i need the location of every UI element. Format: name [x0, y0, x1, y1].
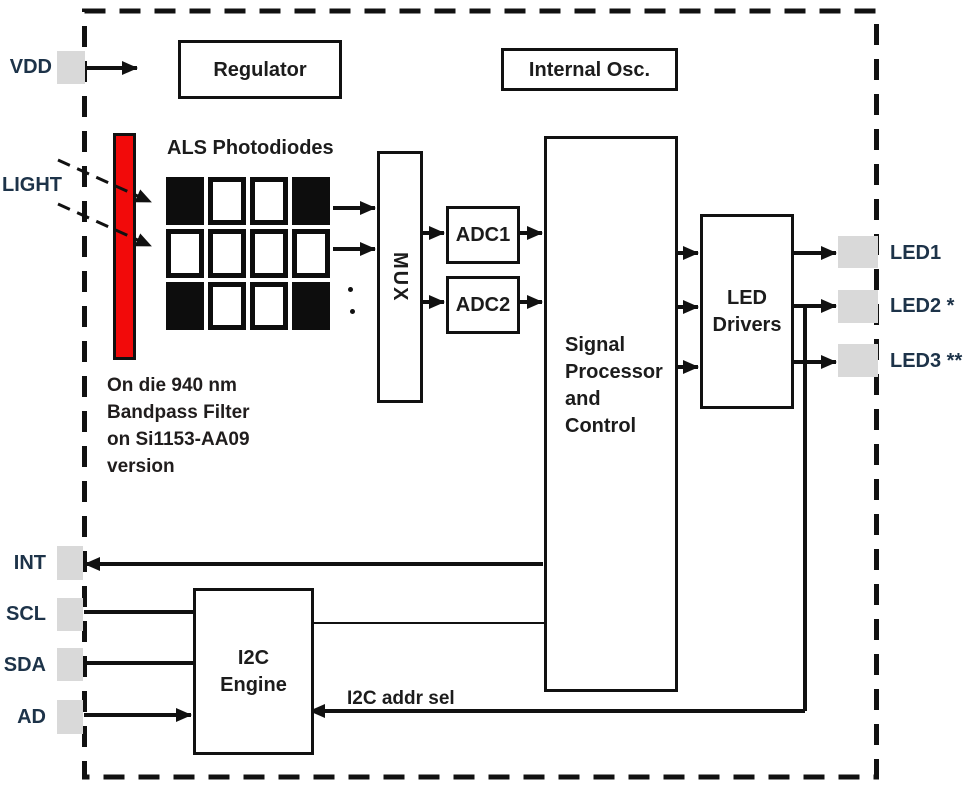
sda-label: SDA	[0, 654, 46, 677]
light-label: LIGHT	[2, 174, 62, 197]
als-photodiodes-label: ALS Photodiodes	[167, 137, 334, 160]
photodiode-cell	[250, 282, 288, 330]
photodiode-grid	[166, 177, 330, 330]
photodiode-cell	[208, 282, 246, 330]
mux-ellipsis-dot	[348, 287, 353, 292]
light-ray-icon	[58, 204, 151, 246]
photodiode-cell	[208, 177, 246, 225]
led1-pad	[838, 236, 878, 268]
ad-label: AD	[0, 706, 46, 729]
int-label: INT	[0, 552, 46, 575]
ad-pad	[57, 700, 83, 734]
signal-processor-label: Signal Processor and Control	[565, 332, 663, 440]
led2-pad	[838, 290, 878, 323]
mux-ellipsis-dot	[350, 309, 355, 314]
photodiode-cell	[166, 229, 204, 278]
photodiode-cell	[166, 282, 204, 330]
vdd-label: VDD	[0, 56, 52, 79]
internal-osc-block: Internal Osc.	[501, 48, 678, 91]
adc2-block: ADC2	[446, 276, 520, 334]
photodiode-cell	[292, 229, 330, 278]
filter-note: On die 940 nm Bandpass Filter on Si1153-…	[107, 372, 250, 480]
light-ray-icon	[58, 160, 151, 202]
led3-pad	[838, 344, 878, 377]
scl-pad	[57, 598, 83, 631]
photodiode-cell	[250, 229, 288, 278]
led3-label: LED3 **	[890, 350, 962, 373]
photodiode-cell	[292, 282, 330, 330]
mux-block: MUX	[377, 151, 423, 403]
regulator-block: Regulator	[178, 40, 342, 99]
block-diagram: VDD LIGHT INT SCL SDA AD LED1 LED2 * LED…	[0, 0, 963, 787]
photodiode-cell	[250, 177, 288, 225]
i2c-addr-sel-label: I2C addr sel	[347, 688, 455, 710]
scl-label: SCL	[0, 603, 46, 626]
photodiode-cell	[292, 177, 330, 225]
photodiode-cell	[208, 229, 246, 278]
int-pad	[57, 546, 83, 580]
adc1-block: ADC1	[446, 206, 520, 264]
led1-label: LED1	[890, 242, 941, 265]
photodiode-cell	[166, 177, 204, 225]
i2c-engine-block: I2C Engine	[193, 588, 314, 755]
led2-label: LED2 *	[890, 295, 954, 318]
sda-pad	[57, 648, 83, 681]
led-drivers-block: LED Drivers	[700, 214, 794, 409]
vdd-pad	[57, 51, 85, 84]
